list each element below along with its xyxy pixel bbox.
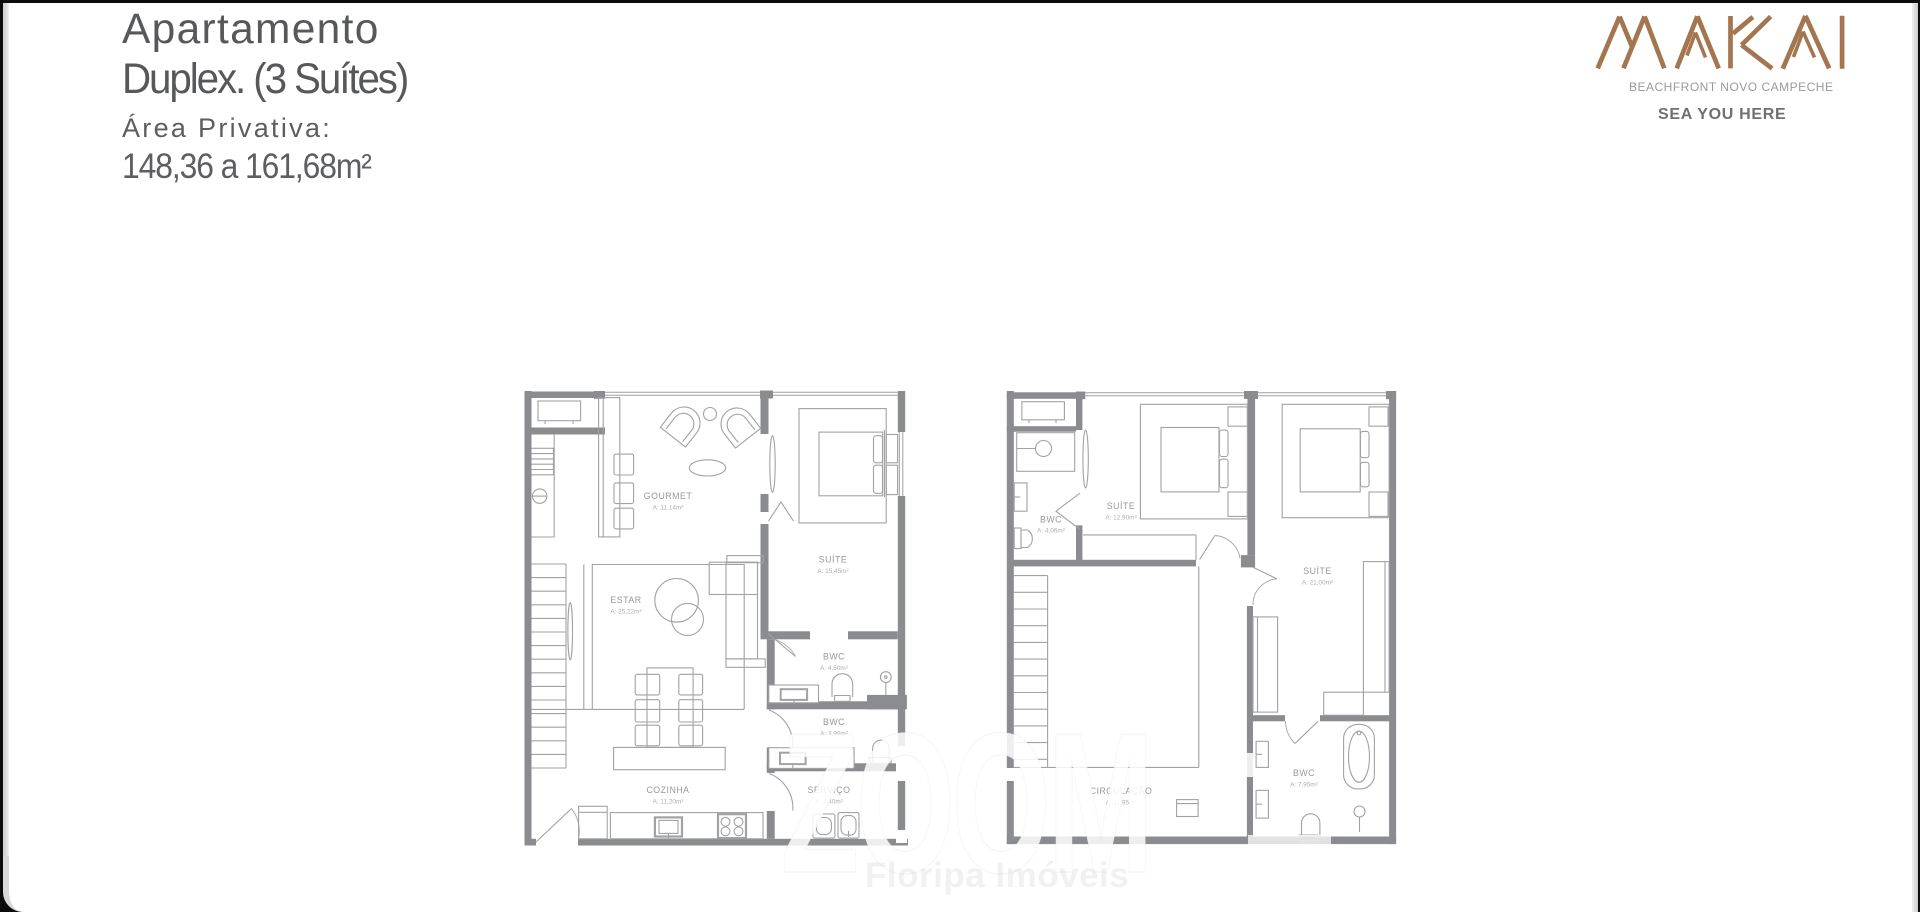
svg-text:A: 15,45m²: A: 15,45m² [817,568,848,575]
svg-text:SUÍTE: SUÍTE [1107,501,1135,511]
svg-text:A: 4,06m²: A: 4,06m² [1037,528,1065,535]
svg-text:ESTAR: ESTAR [610,595,641,605]
svg-text:A: 25,22m²: A: 25,22m² [610,609,641,616]
svg-text:BWC: BWC [823,652,845,662]
svg-text:A: 7,95m²: A: 7,95m² [1290,782,1318,789]
svg-text:A: 11,20m²: A: 11,20m² [653,799,684,806]
svg-text:GOURMET: GOURMET [644,491,693,501]
svg-text:A: 12,90m²: A: 12,90m² [1105,515,1136,522]
svg-text:SUÍTE: SUÍTE [819,555,847,565]
svg-text:BWC: BWC [1040,515,1062,525]
svg-text:A: 11,14m²: A: 11,14m² [653,505,684,512]
svg-text:A: 21,00m²: A: 21,00m² [1302,580,1333,587]
svg-text:COZINHA: COZINHA [646,785,689,795]
svg-text:BWC: BWC [1293,768,1315,778]
svg-text:A: 4,50m²: A: 4,50m² [820,665,848,672]
svg-text:SUÍTE: SUÍTE [1303,566,1331,576]
